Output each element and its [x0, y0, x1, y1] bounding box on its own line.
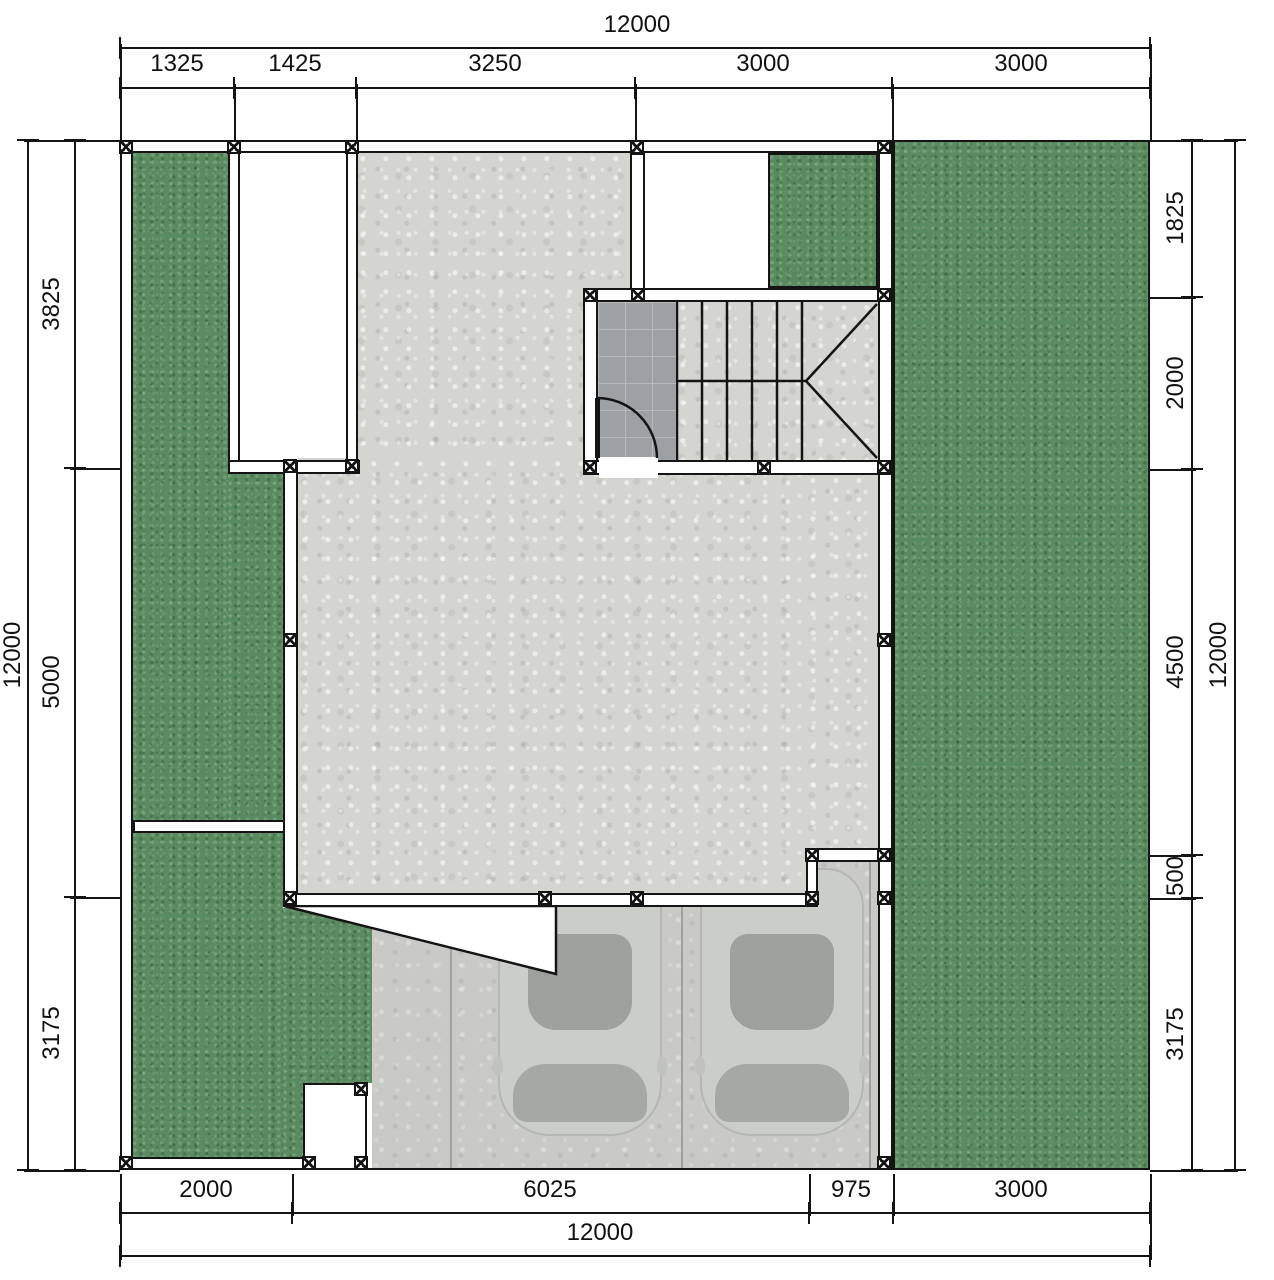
- column-marker: [805, 848, 819, 862]
- porch-left-wall: [228, 140, 240, 472]
- void-area: [645, 153, 768, 288]
- mid-left-wall: [133, 820, 285, 833]
- dimension-line: [1191, 140, 1193, 1170]
- column-marker: [119, 140, 133, 154]
- column-marker: [630, 891, 644, 905]
- splayed-wall-wedge: [283, 903, 558, 976]
- car-mirror: [657, 1056, 667, 1076]
- car-mirror: [493, 1056, 503, 1076]
- column-marker: [877, 891, 891, 905]
- extension-line: [1150, 140, 1238, 142]
- column-marker: [877, 1156, 891, 1170]
- stair-treads: [676, 302, 878, 460]
- column-marker: [345, 459, 359, 473]
- dimension-label: 2000: [1162, 356, 1190, 409]
- main-left-wall: [283, 460, 298, 907]
- floor-plan-canvas: 1200013251425325030003000120003825500031…: [0, 0, 1274, 1280]
- main-room-floor: [298, 458, 806, 893]
- column-marker: [345, 140, 359, 154]
- extension-line: [809, 1174, 811, 1216]
- column-marker: [354, 1156, 368, 1170]
- dimension-line: [74, 140, 76, 1170]
- column-marker: [630, 140, 644, 154]
- car-rear-window: [730, 934, 834, 1030]
- extension-line: [356, 84, 358, 140]
- column-marker: [805, 891, 819, 905]
- car-windshield: [715, 1064, 849, 1122]
- extension-line: [70, 897, 120, 899]
- dimension-label: 500: [1162, 856, 1190, 896]
- column-marker: [757, 460, 771, 474]
- stair-top-wall: [583, 288, 893, 302]
- column-marker: [877, 140, 891, 154]
- dimension-label: 1825: [1162, 191, 1190, 244]
- extension-line: [635, 84, 637, 140]
- extension-line: [120, 1174, 122, 1260]
- car-mirror: [695, 1056, 705, 1076]
- dimension-label: 3000: [994, 50, 1047, 78]
- extension-line: [1150, 297, 1196, 299]
- extension-line: [1150, 898, 1196, 900]
- column-marker: [877, 288, 891, 302]
- bottom-left-wall: [120, 1157, 312, 1170]
- extension-line: [1150, 1174, 1152, 1260]
- extension-line: [292, 1174, 294, 1216]
- void-left-wall: [630, 153, 645, 302]
- dimension-label: 12000: [604, 11, 671, 39]
- column-marker: [302, 1156, 316, 1170]
- driveway-edge-line: [367, 1168, 893, 1170]
- extension-line: [120, 44, 122, 140]
- extension-line: [1150, 44, 1152, 140]
- car-windshield: [513, 1064, 647, 1122]
- pavement-joint: [869, 862, 871, 1168]
- lawn-courtyard: [768, 153, 878, 288]
- car-mirror: [859, 1056, 869, 1076]
- dimension-label: 5000: [38, 655, 66, 708]
- dimension-label: 3825: [38, 277, 66, 330]
- extension-line: [70, 468, 120, 470]
- dimension-line: [120, 47, 1152, 49]
- lawn-left-upper: [133, 153, 228, 820]
- dimension-label: 3250: [468, 50, 521, 78]
- main-room-floor-right: [806, 475, 878, 848]
- column-marker: [583, 288, 597, 302]
- dimension-label: 12000: [1205, 622, 1233, 689]
- dimension-label: 12000: [0, 622, 27, 689]
- dimension-line: [120, 1212, 1152, 1214]
- left-wall: [120, 140, 133, 1170]
- dimension-line: [1234, 140, 1236, 1170]
- extension-line: [234, 84, 236, 140]
- column-marker: [283, 633, 297, 647]
- dimension-label: 975: [831, 1176, 871, 1204]
- column-marker: [538, 891, 552, 905]
- dimension-line: [27, 140, 29, 1170]
- extension-line: [893, 1174, 895, 1216]
- dimension-label: 1325: [150, 50, 203, 78]
- dimension-label: 3175: [1162, 1007, 1190, 1060]
- extension-line: [24, 140, 120, 142]
- lawn-left-lower: [133, 833, 283, 1157]
- extension-line: [892, 84, 894, 140]
- car: [700, 868, 864, 1136]
- porch-right-wall: [346, 140, 358, 472]
- dimension-line: [120, 1255, 1152, 1257]
- extension-line: [1150, 1170, 1238, 1172]
- dimension-label: 6025: [523, 1176, 576, 1204]
- dimension-label: 3175: [38, 1006, 66, 1059]
- staircase: [676, 302, 878, 460]
- dimension-label: 3000: [736, 50, 789, 78]
- lawn-left-upper-widened: [228, 474, 283, 820]
- column-marker: [877, 633, 891, 647]
- pavement-joint: [681, 907, 683, 1168]
- column-marker: [227, 140, 241, 154]
- dimension-label: 2000: [179, 1176, 232, 1204]
- door-swing-icon: [594, 396, 662, 464]
- dimension-label: 1425: [268, 50, 321, 78]
- column-marker: [354, 1082, 368, 1096]
- extension-line: [24, 1170, 120, 1172]
- extension-line: [1150, 469, 1196, 471]
- column-marker: [631, 288, 645, 302]
- column-marker: [583, 460, 597, 474]
- column-marker: [877, 460, 891, 474]
- column-marker: [877, 848, 891, 862]
- lawn-right: [893, 140, 1150, 1170]
- column-marker: [119, 1156, 133, 1170]
- column-marker: [283, 459, 297, 473]
- dimension-label: 4500: [1162, 635, 1190, 688]
- column-marker: [283, 891, 297, 905]
- dimension-label: 12000: [567, 1219, 634, 1247]
- dimension-label: 3000: [994, 1176, 1047, 1204]
